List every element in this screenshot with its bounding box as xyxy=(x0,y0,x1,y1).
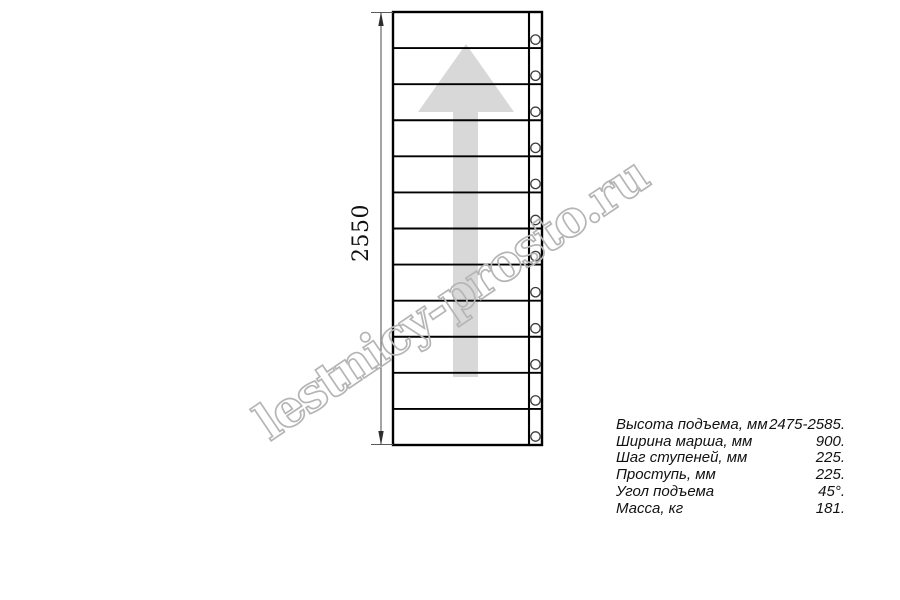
baluster-circle xyxy=(531,143,540,152)
spec-label: Шаг ступеней, мм xyxy=(616,450,747,467)
baluster-circle xyxy=(531,35,540,44)
spec-label: Высота подъема, мм xyxy=(616,417,768,434)
watermark-text: lestnicy-prosto.ru xyxy=(243,145,658,452)
spec-row: Масса, кг 181. xyxy=(616,501,845,518)
spec-value: 2475-2585. xyxy=(769,417,845,434)
baluster-circle xyxy=(531,324,540,333)
baluster-circle xyxy=(531,71,540,80)
spec-value: 225. xyxy=(816,467,845,484)
spec-row: Угол подъема 45°. xyxy=(616,484,845,501)
baluster-circle xyxy=(531,360,540,369)
spec-label: Ширина марша, мм xyxy=(616,434,752,451)
spec-label: Масса, кг xyxy=(616,501,683,518)
dimension-label: 2550 xyxy=(349,204,374,262)
spec-label: Угол подъема xyxy=(616,484,714,501)
baluster-circle xyxy=(531,432,540,441)
baluster-circle xyxy=(531,396,540,405)
spec-value: 900. xyxy=(816,434,845,451)
baluster-circle xyxy=(531,107,540,116)
dim-arrowhead-down xyxy=(378,431,383,445)
spec-row: Ширина марша, мм 900. xyxy=(616,434,845,451)
spec-row: Высота подъема, мм 2475-2585. xyxy=(616,417,845,434)
spec-value: 45°. xyxy=(818,484,845,501)
baluster-circle xyxy=(531,179,540,188)
baluster-circle xyxy=(531,287,540,296)
stair-drawing-page: 2550 lestnicy-prosto.ru Высота подъема, … xyxy=(0,0,900,600)
spec-label: Проступь, мм xyxy=(616,467,716,484)
spec-value: 181. xyxy=(816,501,845,518)
spec-row: Шаг ступеней, мм 225. xyxy=(616,450,845,467)
spec-value: 225. xyxy=(816,450,845,467)
spec-row: Проступь, мм 225. xyxy=(616,467,845,484)
dim-arrowhead-up xyxy=(378,12,383,26)
spec-table: Высота подъема, мм 2475-2585. Ширина мар… xyxy=(616,417,845,517)
